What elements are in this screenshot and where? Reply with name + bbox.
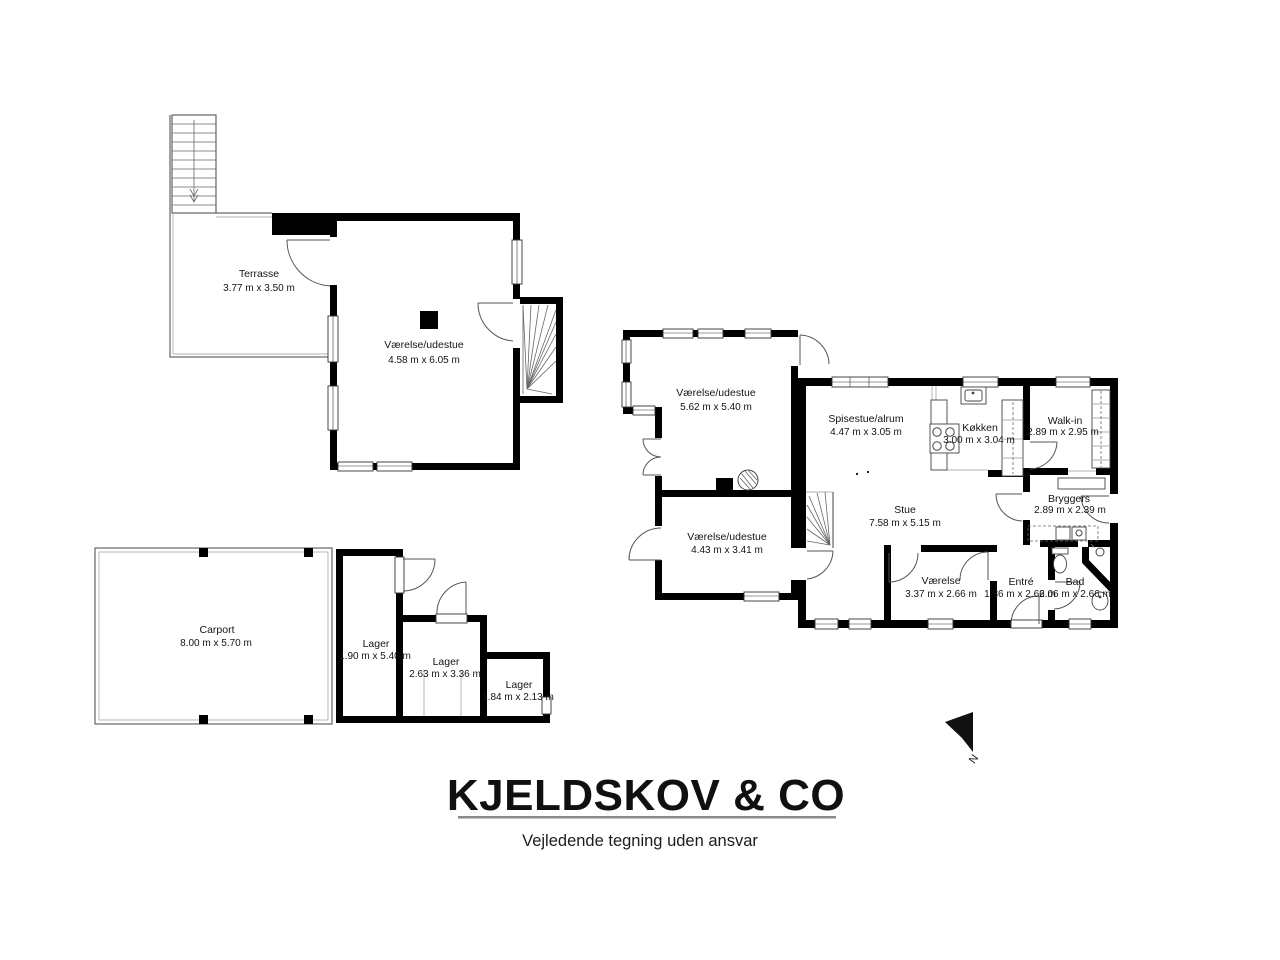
room-label-lager-1: Lager — [363, 638, 390, 650]
room-dims-annex-a: 5.62 m x 5.40 m — [680, 402, 752, 413]
floor-marks — [856, 471, 869, 475]
company-logo: KJELDSKOV & CO Vejledende tegning uden a… — [447, 771, 845, 850]
carport-outline — [95, 548, 332, 724]
plan-outbuildings: Carport 8.00 m x 5.70 m Lager 1.90 m x 5… — [95, 548, 554, 724]
room-dims-annex-b: 4.43 m x 3.41 m — [691, 545, 763, 556]
logo-rule — [458, 816, 836, 819]
exterior-staircase — [172, 115, 216, 213]
stove-block — [420, 311, 438, 329]
room-dims-lager-3: 1.84 m x 2.13 m — [482, 692, 554, 703]
room-dims-bad: 2.06 m x 2.66 m — [1039, 589, 1111, 600]
room-dims-walkin: 2.89 m x 2.95 m — [1027, 427, 1099, 438]
north-label: N — [967, 753, 981, 766]
wood-stove-icon — [738, 470, 758, 490]
plan-upper-floor: Terrasse 3.77 m x 3.50 m Værelse/udestue… — [170, 115, 563, 471]
room-label-bad: Bad — [1066, 576, 1085, 588]
room-dims-spisestue: 4.47 m x 3.05 m — [830, 427, 902, 438]
room-label-spisestue: Spisestue/alrum — [828, 413, 904, 425]
room-label-annex-b: Værelse/udestue — [687, 531, 767, 543]
room-dims-koekken: 3.00 m x 3.04 m — [943, 435, 1015, 446]
company-name: KJELDSKOV & CO — [447, 771, 845, 820]
room-label-lager-2: Lager — [433, 656, 460, 668]
room-dims-lager-2: 2.63 m x 3.36 m — [409, 669, 481, 680]
stue-winder-stair — [806, 492, 833, 548]
room-dims-carport: 8.00 m x 5.70 m — [180, 638, 252, 649]
room-dims-vaerelse: 3.37 m x 2.66 m — [905, 589, 977, 600]
room-label-stue: Stue — [894, 504, 916, 516]
logo-disclaimer: Vejledende tegning uden ansvar — [522, 832, 758, 850]
room-dims-stue: 7.58 m x 5.15 m — [869, 518, 941, 529]
room-label-bryggers: Bryggers — [1048, 493, 1090, 505]
room-dims-bryggers: 2.89 m x 2.39 m — [1034, 505, 1106, 516]
room-label-vaerelse-udestue-upper: Værelse/udestue — [384, 339, 464, 351]
winder-staircase — [523, 305, 556, 394]
room-label-lager-3: Lager — [506, 679, 533, 691]
room-label-vaerelse: Værelse — [921, 575, 960, 587]
room-label-annex-a: Værelse/udestue — [676, 387, 756, 399]
room-dims-vaerelse-udestue-upper: 4.58 m x 6.05 m — [388, 355, 460, 366]
room-label-terrasse: Terrasse — [239, 268, 279, 280]
room-dims-terrasse: 3.77 m x 3.50 m — [223, 283, 295, 294]
plan-ground-floor: Værelse/udestue 5.62 m x 5.40 m Værelse/… — [622, 329, 1118, 629]
room-label-entre: Entré — [1008, 576, 1033, 588]
floorplan-page: Terrasse 3.77 m x 3.50 m Værelse/udestue… — [0, 0, 1280, 960]
room-label-carport: Carport — [199, 624, 234, 636]
north-arrow: N — [945, 712, 981, 766]
room-dims-lager-1: 1.90 m x 5.40 m — [339, 651, 411, 662]
room-label-koekken: Køkken — [962, 422, 998, 434]
room-label-walkin: Walk-in — [1048, 415, 1083, 427]
floorplan-drawing: Terrasse 3.77 m x 3.50 m Værelse/udestue… — [0, 0, 1280, 960]
upper-floor-doors — [287, 240, 513, 341]
north-arrow-icon — [945, 712, 973, 752]
